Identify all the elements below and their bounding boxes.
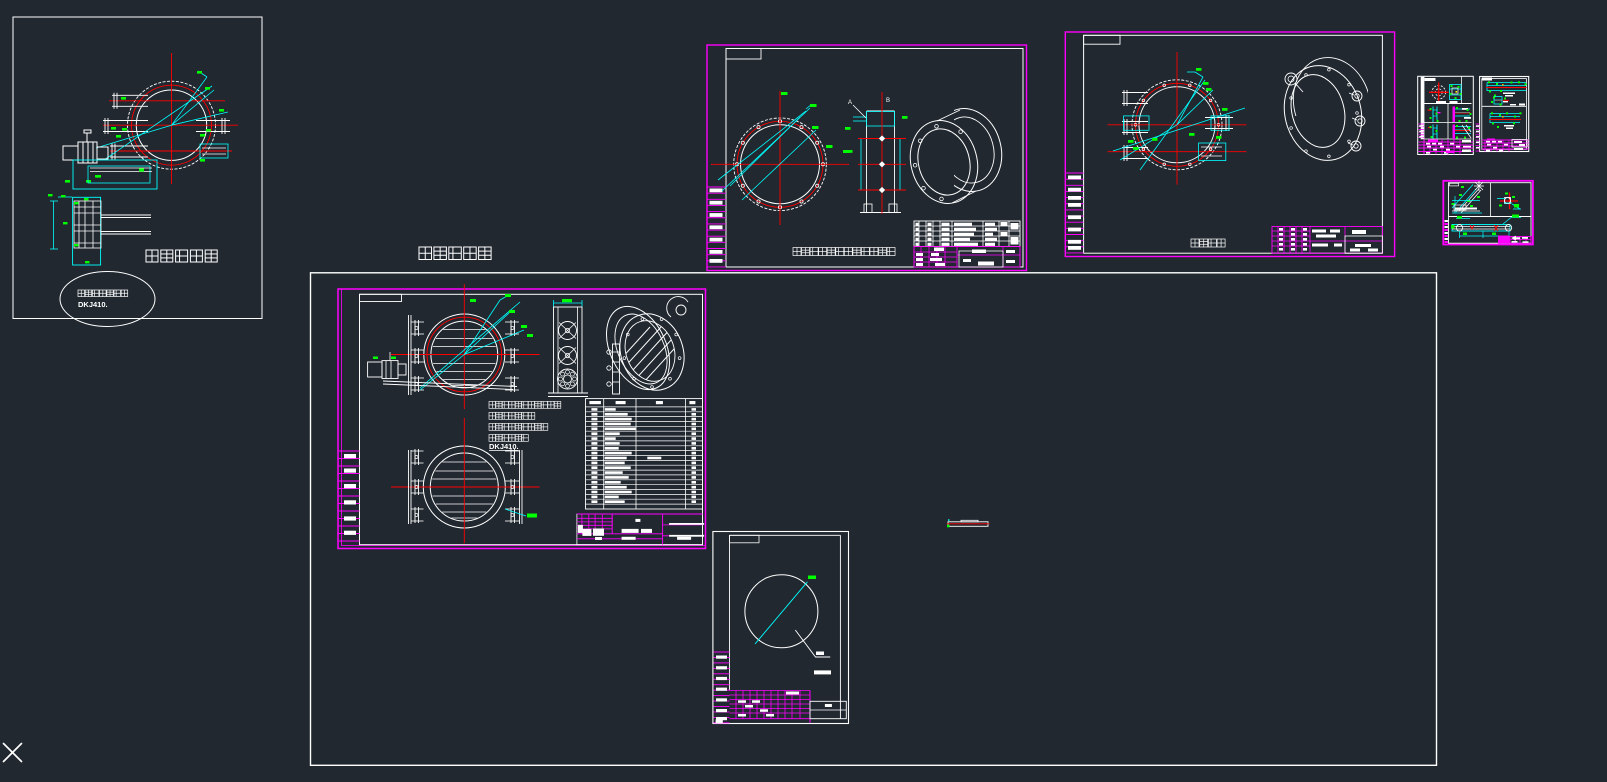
svg-text:B: B	[886, 98, 890, 104]
svg-text:DKJ410.: DKJ410.	[78, 300, 108, 309]
svg-text:A: A	[848, 100, 852, 106]
svg-text:DKJ410.: DKJ410.	[489, 442, 519, 451]
